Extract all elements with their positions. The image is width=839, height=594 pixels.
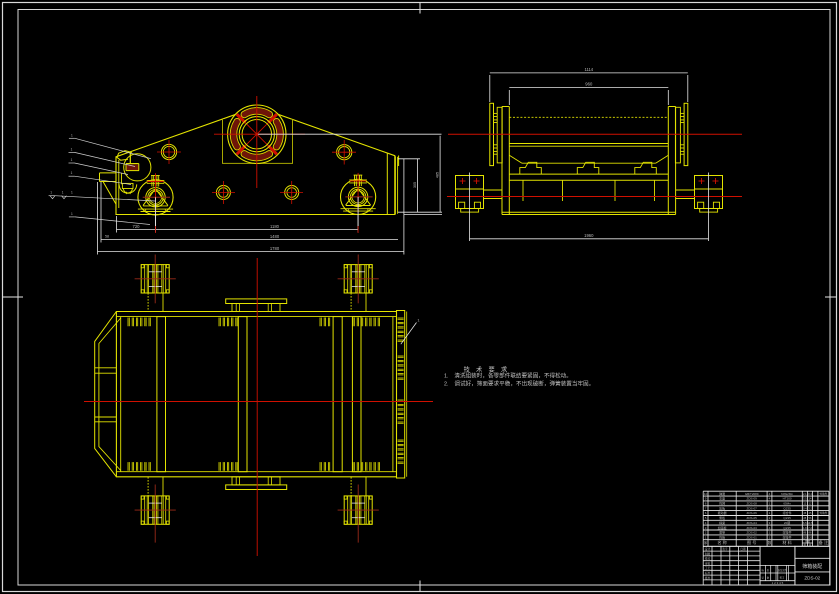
svg-text:签字: 签字: [780, 576, 785, 580]
svg-text:ZDS-09: ZDS-09: [747, 497, 758, 501]
svg-text:1114: 1114: [584, 67, 593, 72]
svg-text:弹簧: 弹簧: [719, 491, 725, 496]
svg-text:1: 1: [71, 191, 73, 195]
svg-text:60Si2Mn: 60Si2Mn: [781, 492, 793, 496]
svg-text:10: 10: [704, 492, 708, 496]
svg-text:重量: 重量: [805, 539, 811, 543]
svg-text:ZDS-02: ZDS-02: [747, 531, 758, 535]
svg-text:3.2: 3.2: [808, 506, 812, 510]
svg-text:支座: 支座: [719, 496, 725, 501]
svg-text:外购件: 外购件: [820, 511, 828, 515]
svg-text:58: 58: [105, 235, 109, 239]
svg-text:焊接件: 焊接件: [783, 535, 792, 540]
svg-text:1: 1: [71, 147, 73, 151]
svg-text:1180: 1180: [270, 224, 280, 229]
svg-text:日期: 日期: [740, 547, 746, 551]
svg-text:批准: 批准: [705, 576, 711, 580]
svg-text:1 2 3 4 5: 1 2 3 4 5: [772, 581, 784, 585]
svg-text:ZDS-02: ZDS-02: [804, 575, 820, 580]
svg-text:485: 485: [435, 172, 439, 178]
svg-text:65Mn: 65Mn: [783, 502, 791, 506]
svg-text:横梁: 横梁: [719, 520, 725, 525]
svg-text:ZDS-06: ZDS-06: [747, 511, 758, 515]
svg-text:组合件: 组合件: [783, 510, 792, 515]
svg-text:3.5: 3.5: [803, 497, 807, 501]
svg-text:备 注: 备 注: [819, 539, 829, 546]
svg-text:底架: 底架: [719, 530, 725, 535]
svg-text:305: 305: [413, 182, 417, 188]
svg-text:外购件: 外购件: [820, 492, 828, 496]
svg-text:720: 720: [133, 224, 141, 229]
svg-text:GB/T2089: GB/T2089: [745, 492, 759, 496]
svg-text:1480: 1480: [270, 234, 280, 239]
svg-text:ZDS-08: ZDS-08: [747, 502, 758, 506]
svg-text:ZDS-04: ZDS-04: [747, 521, 758, 525]
svg-text:Q235: Q235: [783, 506, 791, 510]
svg-text:数: 数: [768, 540, 772, 545]
svg-text:2.1: 2.1: [803, 492, 807, 496]
svg-text:ZDS-05: ZDS-05: [747, 516, 758, 520]
svg-text:更改文件: 更改文件: [777, 568, 787, 572]
svg-text:工艺: 工艺: [705, 566, 711, 570]
svg-text:调试好，筛面要求平稳，不出现破断，弹簧装置当牢固。: 调试好，筛面要求平稳，不出现破断，弹簧装置当牢固。: [454, 379, 594, 387]
svg-text:1.8: 1.8: [803, 526, 807, 530]
svg-text:焊接件: 焊接件: [783, 530, 792, 535]
svg-text:Q235: Q235: [783, 516, 791, 520]
svg-text:标准: 标准: [705, 571, 711, 575]
svg-text:960: 960: [585, 81, 593, 86]
svg-text:压板: 压板: [719, 505, 725, 510]
svg-text:振动器: 振动器: [718, 510, 727, 515]
svg-text:1: 1: [50, 191, 52, 195]
svg-text:审核: 审核: [705, 561, 711, 565]
svg-text:1960: 1960: [584, 233, 594, 238]
svg-text:19.5: 19.5: [807, 521, 813, 525]
svg-text:1: 1: [62, 191, 64, 195]
svg-text:筛箱装配: 筛箱装配: [802, 563, 822, 570]
svg-text:1: 1: [71, 158, 73, 162]
svg-text:1780: 1780: [270, 246, 280, 251]
svg-text:名 称: 名 称: [717, 539, 727, 546]
svg-text:1: 1: [71, 212, 73, 216]
svg-text:20钢: 20钢: [784, 520, 790, 525]
svg-text:HT200: HT200: [783, 497, 792, 501]
svg-text:筛网: 筛网: [719, 501, 725, 506]
svg-text:制图: 制图: [705, 552, 711, 556]
svg-text:签字: 签字: [722, 547, 728, 551]
svg-text:2.: 2.: [444, 381, 449, 387]
svg-text:Q235: Q235: [783, 526, 791, 530]
svg-text:ZDS-03: ZDS-03: [747, 526, 758, 530]
svg-text:7.2: 7.2: [808, 526, 812, 530]
svg-text:校对: 校对: [705, 557, 711, 561]
svg-text:设计: 设计: [705, 547, 711, 551]
svg-text:8.4: 8.4: [808, 492, 812, 496]
svg-text:技 术 要 求: 技 术 要 求: [464, 364, 510, 373]
svg-text:ZDS-07: ZDS-07: [747, 506, 758, 510]
svg-text:1: 1: [71, 133, 73, 137]
svg-text:1: 1: [71, 171, 73, 175]
svg-text:1.: 1.: [444, 373, 449, 379]
svg-text:材 料: 材 料: [782, 539, 792, 546]
svg-text:筛箱: 筛箱: [719, 535, 725, 540]
svg-text:侧板: 侧板: [719, 515, 725, 520]
svg-text:清洗组装时，各零部件联结要紧固，不得松动。: 清洗组装时，各零部件联结要紧固，不得松动。: [454, 371, 571, 379]
svg-text:0.4: 0.4: [803, 506, 807, 510]
svg-text:加强板: 加强板: [718, 525, 727, 530]
